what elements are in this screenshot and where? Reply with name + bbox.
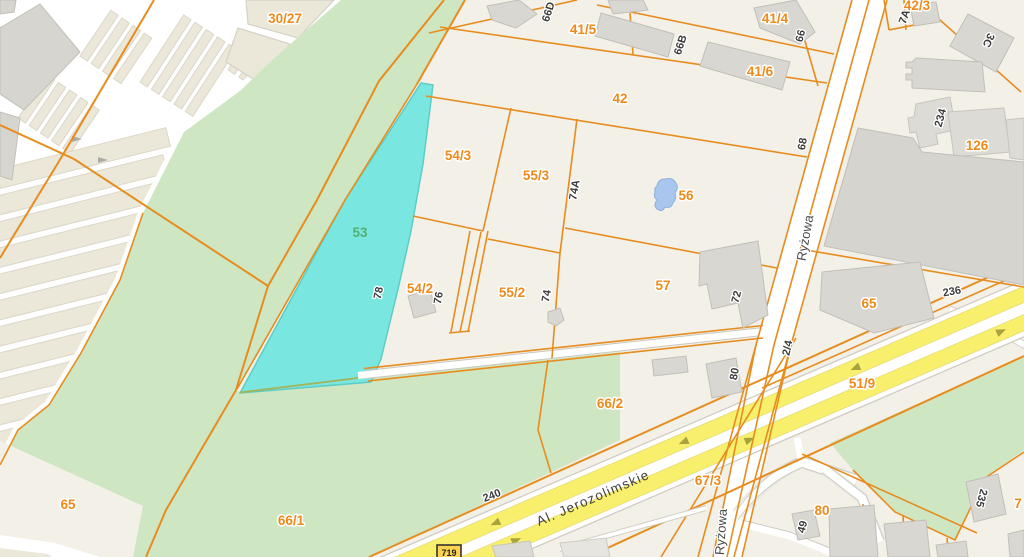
svg-text:54/2: 54/2 <box>407 281 433 296</box>
svg-text:51/9: 51/9 <box>849 376 875 391</box>
svg-text:66/1: 66/1 <box>278 513 305 528</box>
svg-text:68: 68 <box>796 137 810 151</box>
svg-text:56: 56 <box>678 188 694 203</box>
svg-text:41/4: 41/4 <box>762 11 789 26</box>
svg-text:78: 78 <box>372 286 386 300</box>
svg-text:126: 126 <box>966 138 989 153</box>
svg-text:41/5: 41/5 <box>570 22 597 37</box>
svg-text:76: 76 <box>432 291 446 305</box>
svg-text:65: 65 <box>861 296 877 311</box>
svg-text:65: 65 <box>60 497 76 512</box>
svg-text:53: 53 <box>352 225 368 240</box>
svg-text:42: 42 <box>612 91 627 106</box>
svg-text:41/6: 41/6 <box>747 64 774 79</box>
svg-text:67/3: 67/3 <box>695 473 722 488</box>
svg-text:54/3: 54/3 <box>445 148 472 163</box>
svg-text:80: 80 <box>814 503 829 518</box>
svg-text:719: 719 <box>441 548 456 557</box>
svg-text:57: 57 <box>655 278 670 293</box>
svg-text:66/2: 66/2 <box>597 396 623 411</box>
svg-text:30/27: 30/27 <box>268 11 302 26</box>
svg-text:55/2: 55/2 <box>499 285 525 300</box>
svg-text:80: 80 <box>728 367 742 381</box>
svg-text:55/3: 55/3 <box>523 168 550 183</box>
svg-text:7: 7 <box>1014 496 1022 511</box>
